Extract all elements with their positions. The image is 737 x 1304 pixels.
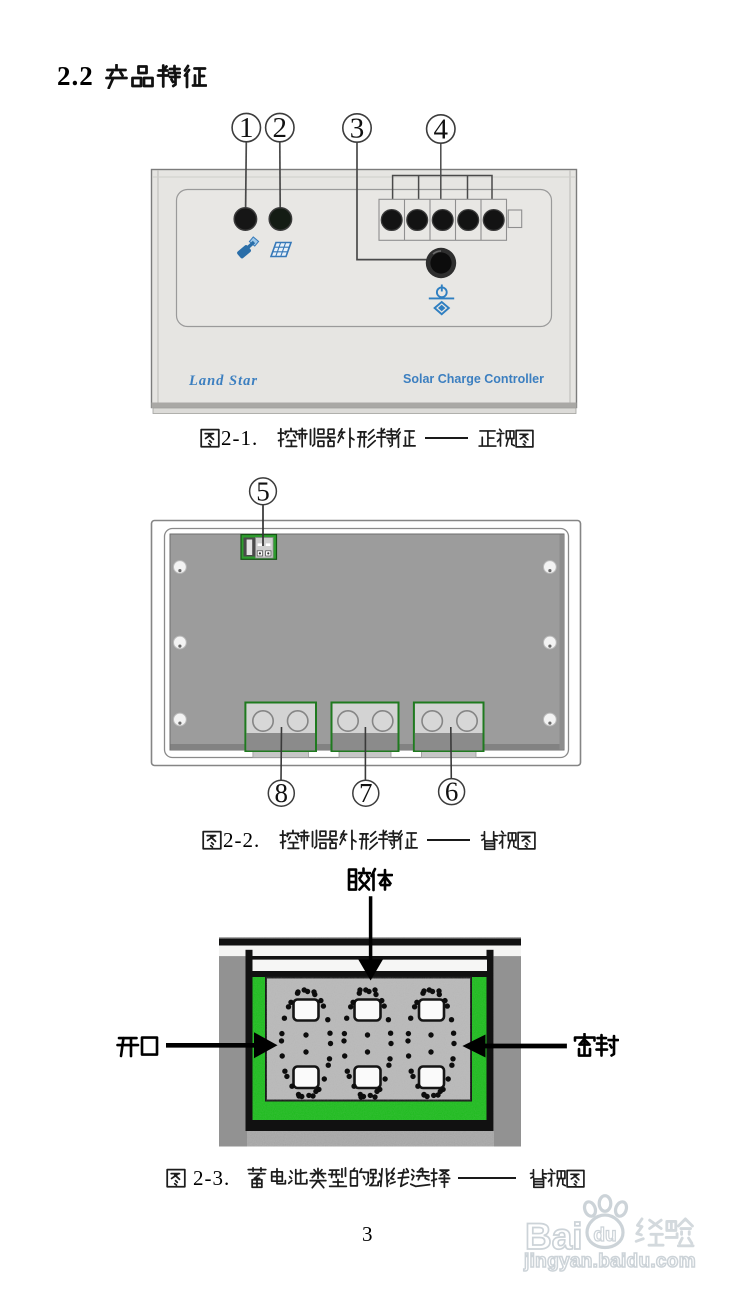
svg-text:2: 2 — [273, 112, 288, 144]
svg-text:du: du — [593, 1225, 616, 1246]
svg-text:5: 5 — [256, 477, 270, 507]
svg-text:7: 7 — [359, 778, 373, 808]
svg-text:3: 3 — [350, 113, 365, 145]
svg-text:8: 8 — [275, 778, 289, 808]
svg-text:4: 4 — [434, 114, 449, 146]
svg-text:6: 6 — [445, 777, 459, 807]
svg-text:1: 1 — [239, 112, 254, 144]
